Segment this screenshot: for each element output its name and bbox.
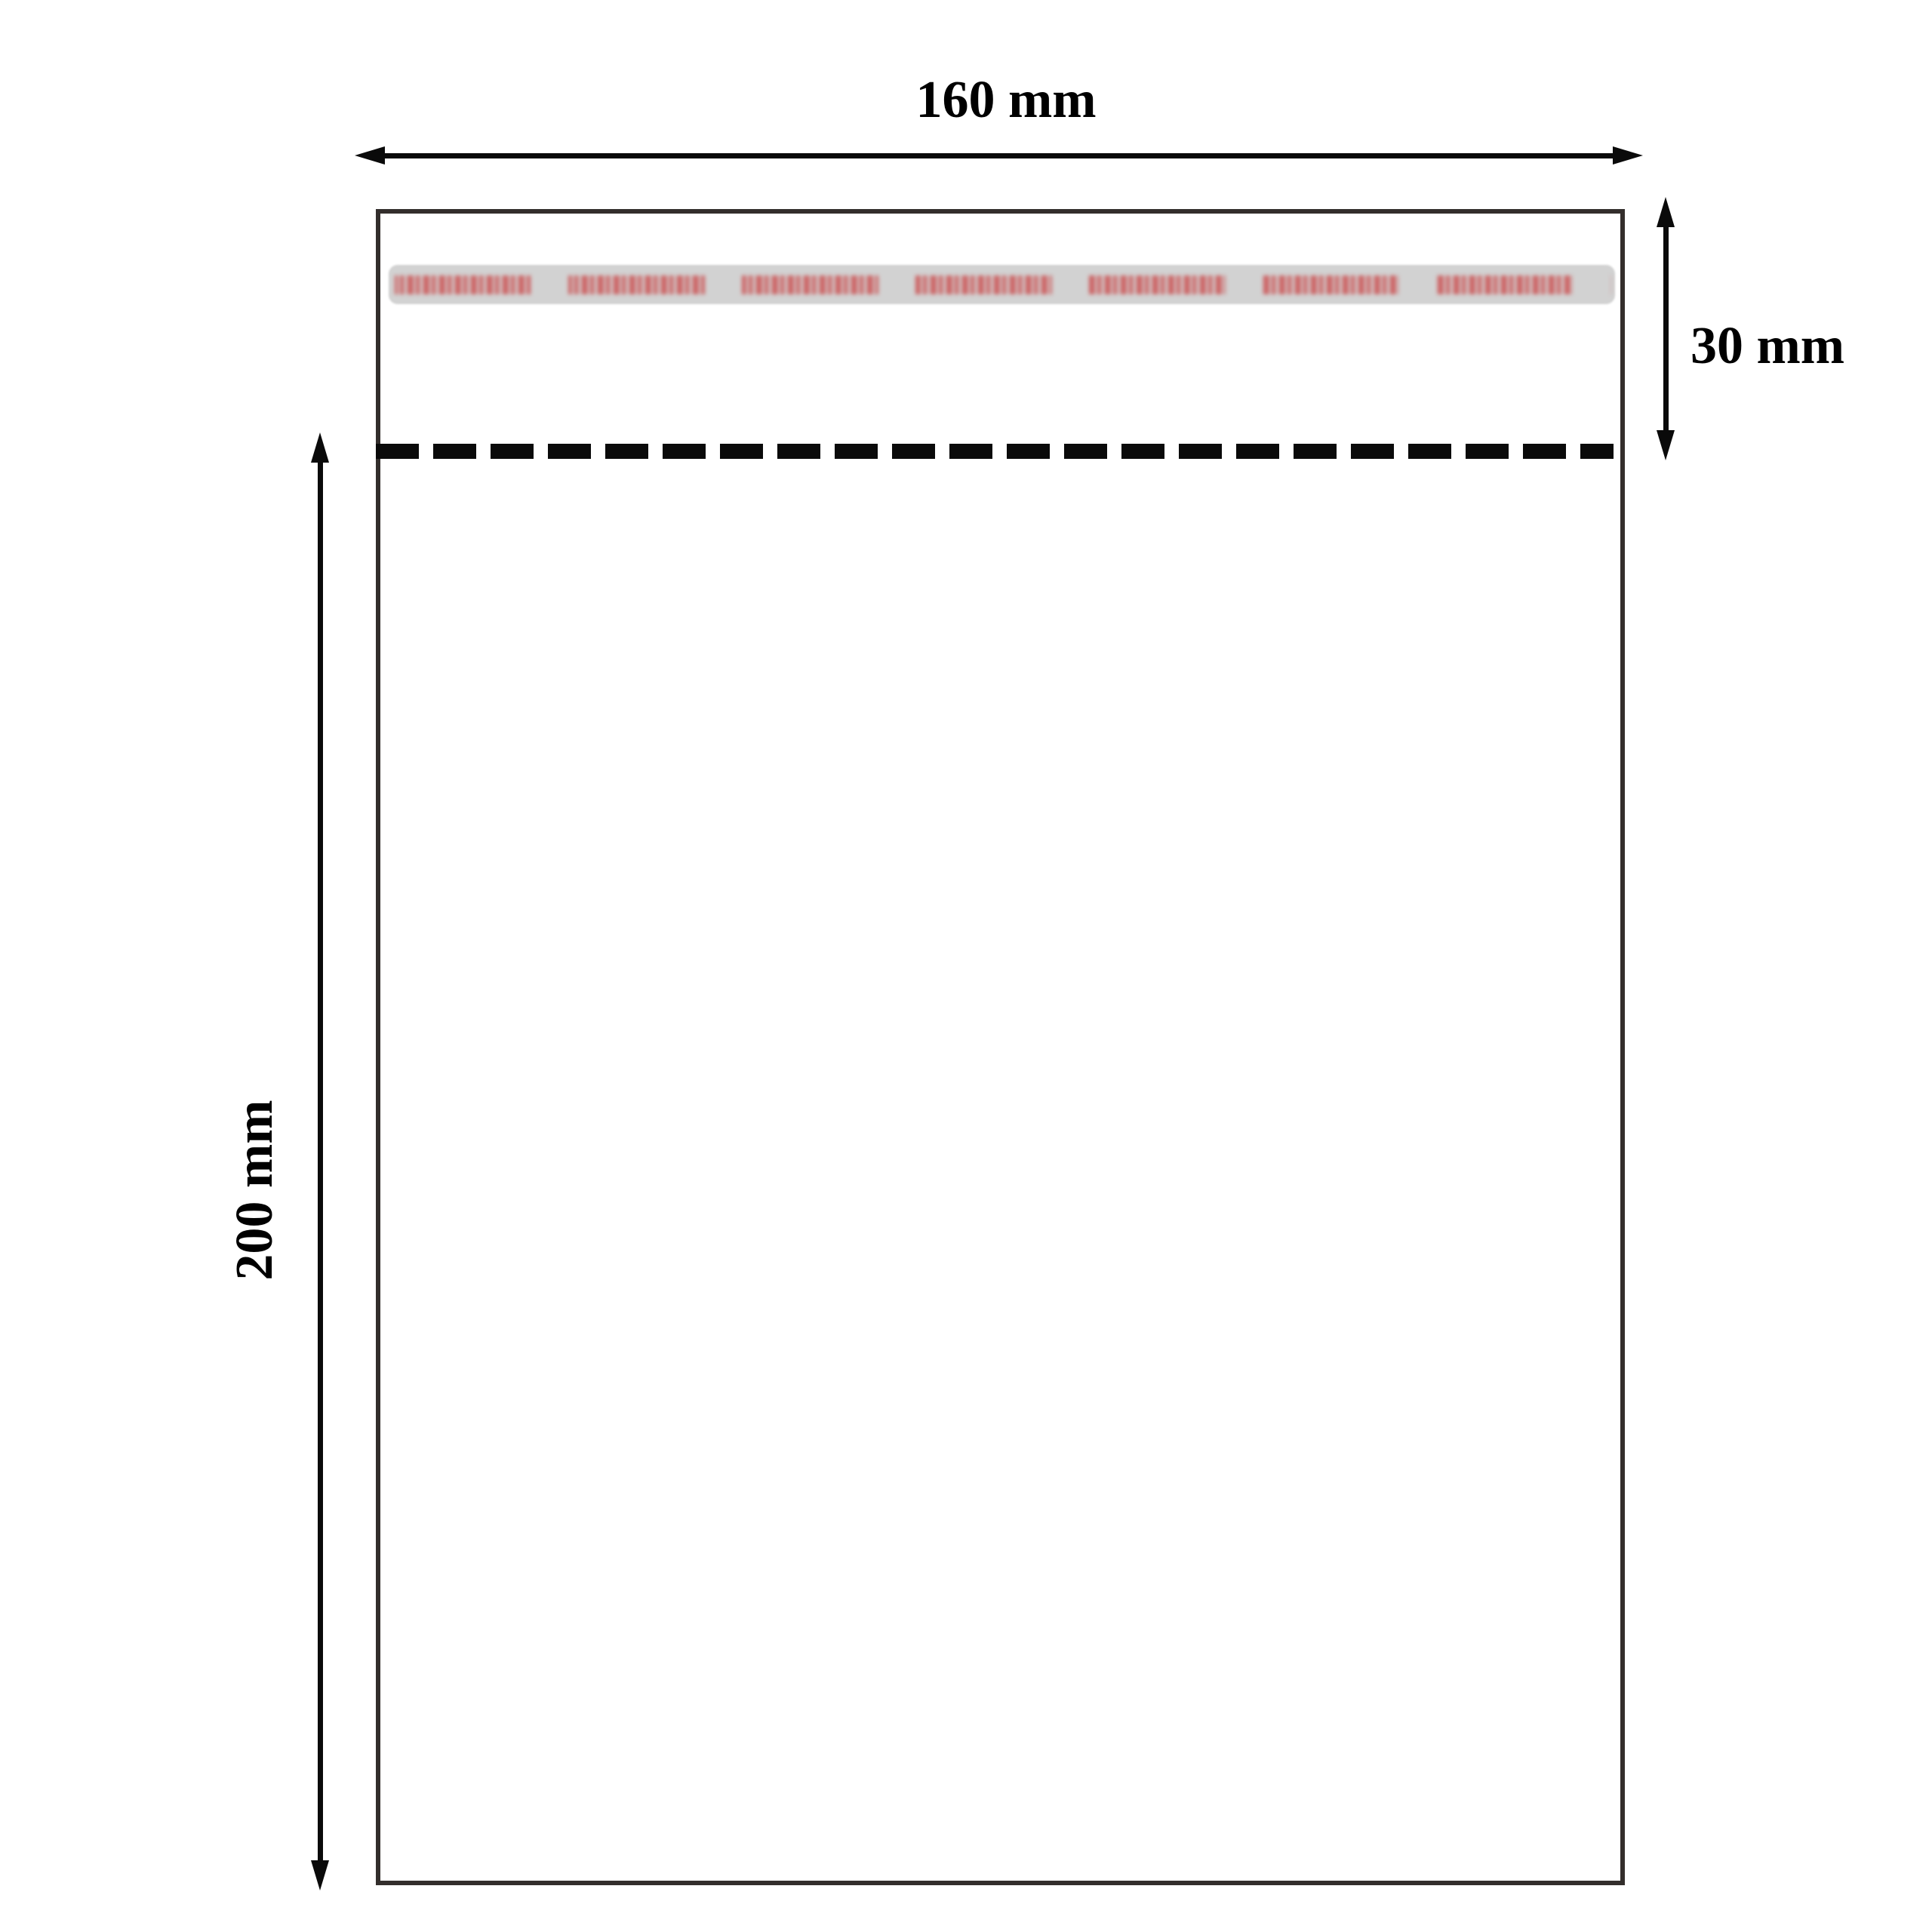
arrow-line (380, 153, 1617, 158)
flap-dimension-label: 30 mm (1690, 320, 1844, 373)
bag-dimension-diagram: 160 mm 30 mm 200 mm (0, 0, 1932, 1932)
flap-dimension-arrow (1651, 197, 1681, 460)
width-dimension-arrow (355, 140, 1643, 171)
adhesive-tape-print (392, 275, 1612, 294)
arrowhead-right-icon (1613, 146, 1643, 165)
fold-dashed-line (376, 444, 1614, 459)
height-dimension-arrow (305, 432, 335, 1890)
adhesive-tape-strip (389, 265, 1615, 304)
bag-outline (376, 209, 1625, 1885)
arrow-line (1663, 223, 1669, 435)
arrowhead-down-icon (1657, 430, 1675, 460)
width-dimension-label: 160 mm (915, 74, 1096, 127)
arrowhead-down-icon (311, 1860, 329, 1890)
arrow-line (318, 458, 323, 1865)
height-dimension-label: 200 mm (229, 1100, 281, 1280)
